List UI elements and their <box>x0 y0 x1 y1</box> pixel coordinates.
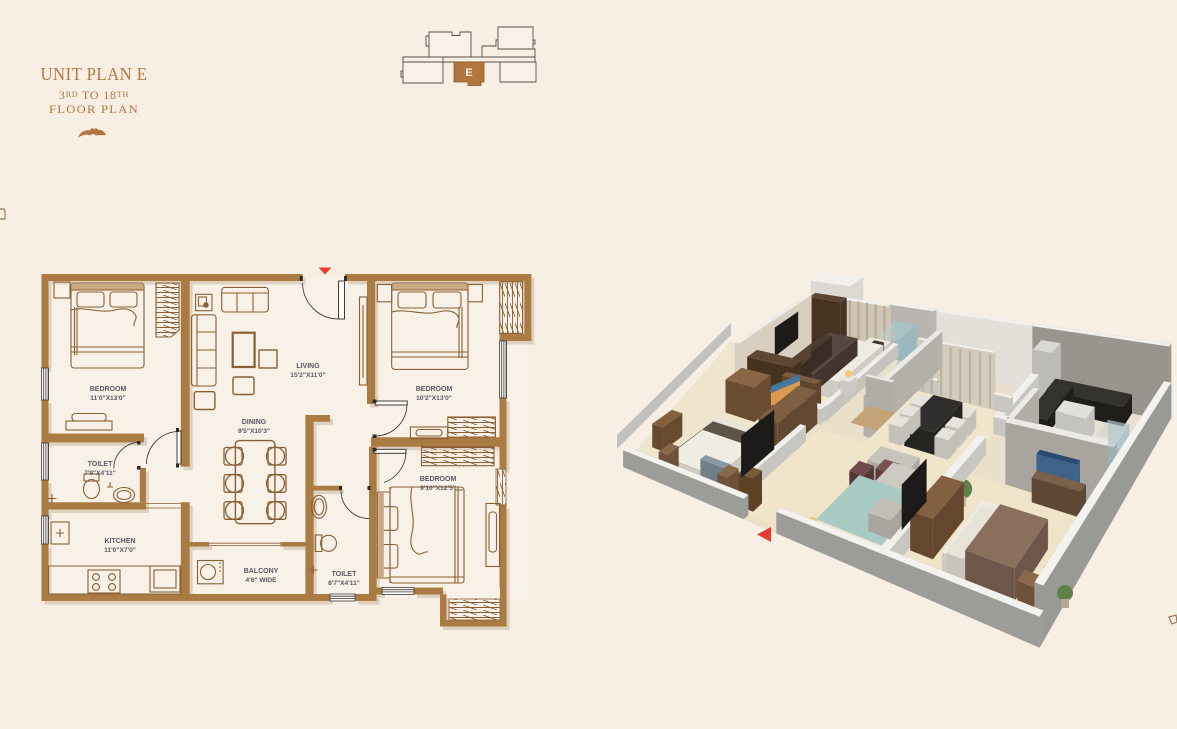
svg-text:11'0"X13'0": 11'0"X13'0" <box>90 395 125 402</box>
svg-text:10'2"X13'0": 10'2"X13'0" <box>416 395 452 402</box>
svg-text:E: E <box>465 67 472 79</box>
svg-text:BEDROOM: BEDROOM <box>420 476 457 483</box>
svg-text:11'0"X7'0": 11'0"X7'0" <box>104 547 136 554</box>
svg-text:DINING: DINING <box>242 419 267 426</box>
svg-text:LIVING: LIVING <box>296 363 320 370</box>
svg-text:9'10"X12'5": 9'10"X12'5" <box>420 485 456 492</box>
svg-text:BEDROOM: BEDROOM <box>416 386 453 393</box>
svg-text:7'9"X4'11": 7'9"X4'11" <box>84 470 116 477</box>
svg-text:TOILET: TOILET <box>88 461 113 468</box>
svg-text:9'5"X10'3": 9'5"X10'3" <box>238 428 270 435</box>
svg-text:8'7"X4'11": 8'7"X4'11" <box>328 580 360 587</box>
svg-text:BEDROOM: BEDROOM <box>90 386 127 393</box>
svg-text:4'6" WIDE: 4'6" WIDE <box>245 577 277 584</box>
svg-text:BALCONY: BALCONY <box>244 568 279 575</box>
svg-text:FLOOR PLAN: FLOOR PLAN <box>49 102 139 116</box>
svg-text:KITCHEN: KITCHEN <box>104 538 135 545</box>
svg-text:TOILET: TOILET <box>332 571 357 578</box>
svg-text:UNIT PLAN E: UNIT PLAN E <box>41 64 148 84</box>
svg-text:15'2"X11'0": 15'2"X11'0" <box>290 372 325 379</box>
